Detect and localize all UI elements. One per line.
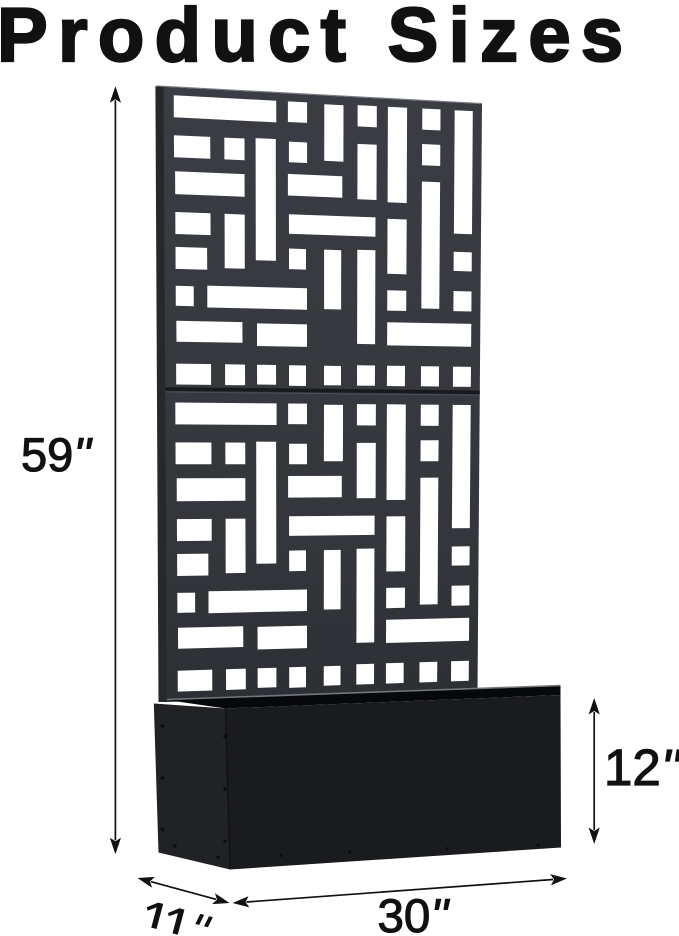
- svg-text:30'': 30'': [378, 890, 451, 936]
- svg-text:12'': 12'': [604, 739, 679, 796]
- svg-text:59'': 59'': [21, 428, 93, 481]
- svg-text:Product Sizes: Product Sizes: [0, 0, 633, 78]
